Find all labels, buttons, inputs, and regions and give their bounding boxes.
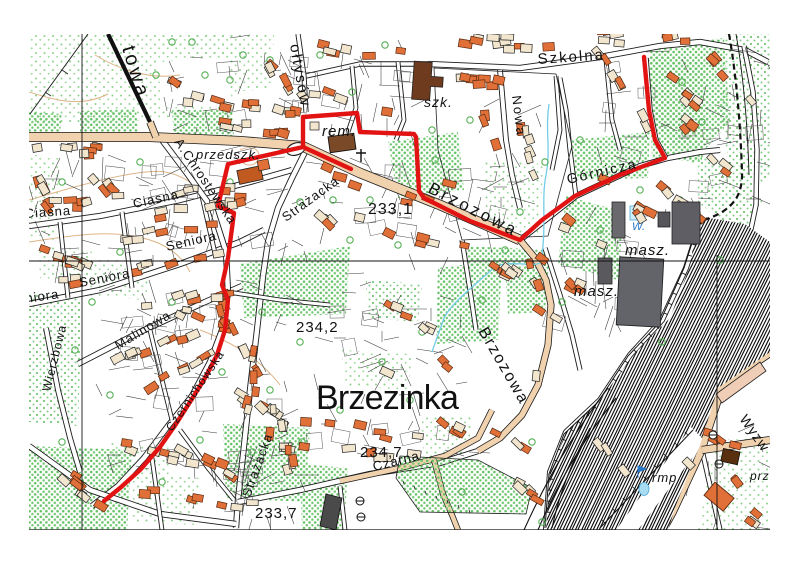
svg-text:rem.: rem. (322, 123, 356, 140)
svg-text:233,7: 233,7 (255, 505, 298, 522)
svg-text:prz: prz (749, 469, 770, 483)
svg-text:234,2: 234,2 (296, 319, 339, 336)
svg-text:rmp: rmp (652, 470, 677, 485)
svg-text:W.: W. (632, 221, 645, 233)
svg-text:szk.: szk. (424, 94, 453, 110)
svg-text:233,1: 233,1 (368, 201, 413, 218)
svg-text:przedszk.: przedszk. (195, 147, 261, 162)
svg-text:Brzezinka: Brzezinka (316, 379, 459, 417)
svg-text:masz.: masz. (625, 242, 670, 259)
svg-text:masz.: masz. (574, 283, 619, 300)
